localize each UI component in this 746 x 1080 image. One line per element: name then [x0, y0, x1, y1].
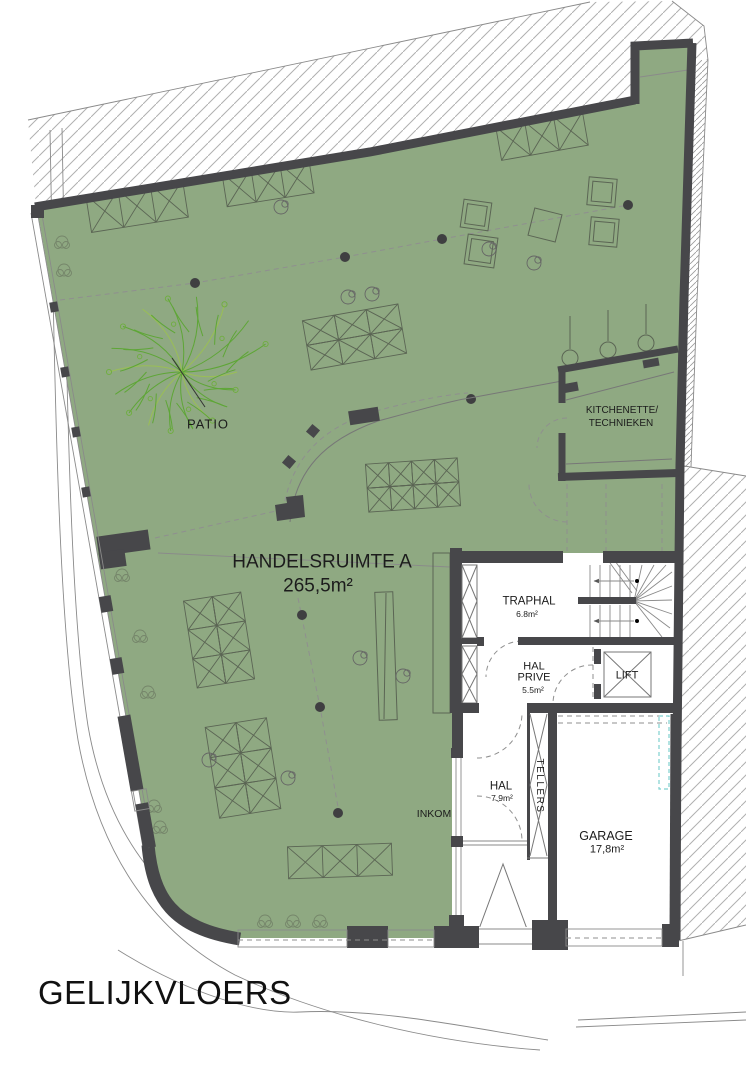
drawing-title: GELIJKVLOERS — [38, 974, 292, 1012]
room-area-hal: 7.9m² — [491, 794, 513, 803]
room-area-traphal: 6.8m² — [516, 610, 538, 619]
rooms-white — [450, 553, 679, 938]
floorplan-svg — [0, 0, 746, 1080]
room-label-traphal: TRAPHAL — [502, 596, 555, 608]
room-label-kitchenette-line2: TECHNIEKEN — [589, 419, 653, 429]
room-label-lift: LIFT — [616, 671, 639, 682]
room-area-hal-prive: 5.5m² — [522, 686, 544, 695]
room-area-garage: 17,8m² — [590, 845, 624, 856]
room-label-inkom: INKOM — [417, 809, 451, 820]
floor-plan: PATIO HANDELSRUIMTE A 265,5m² KITCHENETT… — [0, 0, 746, 1080]
room-label-tellers: TELLERS — [534, 759, 544, 814]
room-label-kitchenette-line1: KITCHENETTE/ — [586, 406, 658, 416]
room-label-handelsruimte: HANDELSRUIMTE A — [232, 553, 411, 572]
room-label-garage: GARAGE — [579, 830, 633, 843]
room-label-hal-prive-line2: PRIVE — [517, 673, 550, 684]
room-label-hal: HAL — [490, 781, 512, 793]
door-opening — [479, 927, 532, 946]
room-area-handelsruimte: 265,5m² — [283, 577, 353, 596]
room-label-patio: PATIO — [187, 418, 229, 431]
